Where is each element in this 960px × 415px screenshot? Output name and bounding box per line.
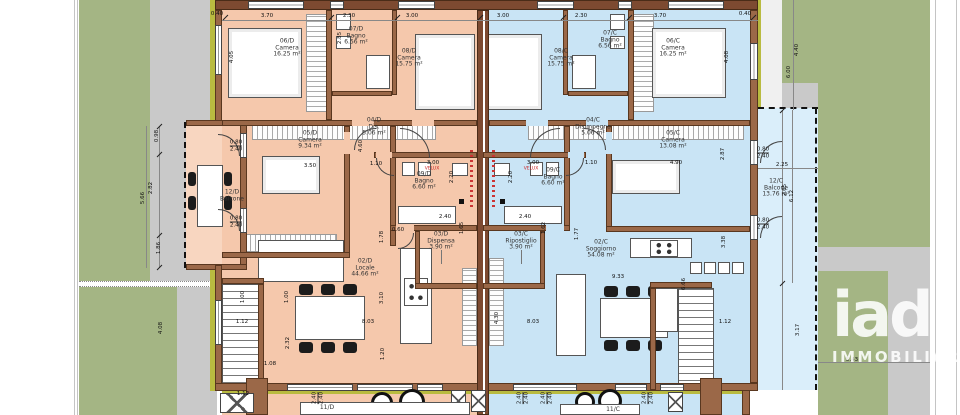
dimension-label: 1.62 bbox=[541, 222, 547, 234]
cabinet bbox=[306, 14, 328, 112]
dimension-label: 6.12 bbox=[789, 190, 795, 202]
cabinet bbox=[489, 258, 504, 346]
dimension-line bbox=[222, 20, 758, 21]
dimension-label: 0.802.40 bbox=[757, 147, 769, 160]
dimension-label: 9.33 bbox=[612, 274, 624, 280]
dimension-label: 2.402.40 bbox=[541, 392, 554, 404]
dimension-label: 2.30 bbox=[575, 13, 587, 19]
dimension-label: 0.802.40 bbox=[230, 140, 242, 153]
chair bbox=[343, 284, 357, 295]
brand-logo-text: iad bbox=[832, 284, 960, 346]
wall bbox=[222, 278, 264, 284]
balcony-edge bbox=[815, 108, 817, 390]
wall bbox=[568, 91, 628, 96]
dimension-label: 3.17 bbox=[795, 324, 801, 336]
dimension-label: 1.77 bbox=[574, 228, 580, 240]
chair bbox=[188, 196, 196, 210]
room-label-06-c: 06/CCamera16.25 m² bbox=[659, 38, 686, 58]
chair bbox=[321, 284, 335, 295]
leader-line bbox=[441, 250, 442, 264]
dimension-label: 3.70 bbox=[654, 13, 666, 19]
dimension-label: 1.78 bbox=[379, 231, 385, 243]
brand-wordmark: IMMOBILIARE bbox=[832, 348, 960, 366]
cabinet bbox=[632, 14, 654, 112]
lawn bbox=[818, 83, 930, 247]
window bbox=[618, 1, 632, 9]
floor-plan-canvas: 06/DCamera16.25 m²07/DBagno6.56 m²08/DCa… bbox=[0, 0, 960, 415]
chair bbox=[626, 340, 640, 351]
red-note bbox=[492, 150, 495, 210]
balcony-edge bbox=[184, 122, 186, 268]
balcony-edge bbox=[758, 107, 818, 109]
window bbox=[750, 43, 758, 80]
dimension-label: 3.10 bbox=[379, 292, 385, 304]
door-opening bbox=[344, 132, 350, 154]
dimension-label: 3.00 bbox=[497, 13, 509, 19]
room-label-02-c: 02/CSoggiorno54.08 m² bbox=[586, 239, 616, 259]
room-label-09-c: 09/CBagno6.60 m² bbox=[541, 167, 565, 187]
room-label-06-d: 06/DCamera16.25 m² bbox=[273, 38, 300, 58]
furniture bbox=[560, 404, 640, 415]
furniture bbox=[258, 240, 344, 282]
dimension-label: 3.50 bbox=[304, 163, 316, 169]
dimension-line bbox=[758, 168, 818, 169]
dimension-label: 1.12 bbox=[236, 319, 248, 325]
dimension-label: 1.00 bbox=[284, 291, 290, 303]
wall bbox=[258, 284, 264, 390]
room-label-08-d: 08/DCamera15.75 m² bbox=[395, 48, 422, 68]
window bbox=[248, 1, 304, 9]
dimension-label: 0.40 bbox=[211, 11, 223, 17]
margin-line bbox=[74, 0, 75, 415]
planter bbox=[668, 392, 683, 412]
dimension-label: 8.03 bbox=[362, 319, 374, 325]
column bbox=[500, 199, 505, 204]
dimension-label: 0.802.40 bbox=[757, 218, 769, 231]
dimension-label: 2.402.40 bbox=[517, 392, 530, 404]
window bbox=[417, 384, 443, 391]
dimension-label: 0.98 bbox=[154, 130, 160, 142]
dimension-label: 1.10 bbox=[370, 161, 382, 167]
chair bbox=[626, 286, 640, 297]
dimension-label: 0.60 bbox=[392, 227, 404, 233]
dimension-label: 2.402.40 bbox=[312, 392, 325, 404]
margin-line bbox=[77, 0, 78, 415]
furniture bbox=[295, 296, 365, 340]
chair bbox=[321, 342, 335, 353]
room-label-07-c: 07/CBagno6.56 m² bbox=[598, 30, 622, 50]
dimension-label: 2.87 bbox=[720, 148, 726, 160]
party-wall bbox=[477, 10, 489, 415]
window bbox=[660, 384, 684, 391]
wall bbox=[415, 231, 420, 289]
lawn bbox=[79, 287, 177, 415]
window bbox=[513, 384, 577, 391]
window bbox=[215, 300, 222, 345]
room-label-08-c: 08/CCamera15.75 m² bbox=[547, 48, 574, 68]
room-label-11-d: 11/D bbox=[320, 405, 334, 412]
furniture bbox=[704, 262, 716, 274]
wall bbox=[700, 378, 722, 415]
dimension-line bbox=[782, 110, 783, 390]
furniture bbox=[610, 14, 625, 30]
door-opening bbox=[412, 120, 434, 126]
window bbox=[398, 1, 435, 9]
dimension-label: 8.03 bbox=[527, 319, 539, 325]
planter bbox=[471, 390, 486, 412]
room-label-07-d: 07/DBagno6.56 m² bbox=[344, 26, 368, 46]
dimension-label: 1.12 bbox=[237, 391, 249, 397]
dimension-label: 2.20 bbox=[449, 171, 455, 183]
window bbox=[615, 384, 647, 391]
pavement bbox=[761, 0, 782, 108]
path bbox=[818, 247, 930, 271]
velux-label: VELUX bbox=[425, 167, 440, 172]
wall bbox=[540, 231, 545, 289]
path bbox=[782, 83, 818, 108]
dimension-label: 1.10 bbox=[585, 160, 597, 166]
dimension-label: 3.00 bbox=[527, 160, 539, 166]
dimension-label: 4.08 bbox=[158, 322, 164, 334]
bed bbox=[262, 156, 320, 194]
brand-logo: iad IMMOBILIARE bbox=[832, 284, 960, 366]
wall bbox=[415, 283, 477, 289]
dimension-label: 2.82 bbox=[148, 182, 154, 194]
window bbox=[537, 1, 574, 9]
chair bbox=[188, 172, 196, 186]
dimension-label: 4.40 bbox=[794, 44, 800, 56]
room-label-05-d: 05/DCamera9.34 m² bbox=[298, 130, 322, 150]
dimension-label: 2.85 bbox=[337, 32, 343, 44]
dimension-label: 4.08 bbox=[724, 51, 730, 63]
furniture bbox=[732, 262, 744, 274]
wall bbox=[628, 10, 634, 120]
dimension-label: 4.60 bbox=[358, 140, 364, 152]
furniture bbox=[366, 55, 390, 89]
door-opening bbox=[526, 120, 548, 126]
dimension-label: 2.65 bbox=[782, 184, 788, 196]
dimension-label: 2.402.40 bbox=[642, 392, 655, 404]
wall bbox=[483, 283, 545, 289]
wall bbox=[222, 252, 350, 258]
wardrobe bbox=[528, 124, 744, 140]
dimension-label: 1.86 bbox=[156, 242, 162, 254]
chair bbox=[604, 286, 618, 297]
door-opening bbox=[546, 225, 564, 231]
room-label-09-d: 09/DBagno6.60 m² bbox=[412, 171, 436, 191]
wall bbox=[606, 226, 750, 232]
chair bbox=[343, 342, 357, 353]
window bbox=[330, 1, 344, 9]
furniture bbox=[654, 288, 678, 332]
dimension-label: 3.00 bbox=[427, 160, 439, 166]
dimension-label: 0.802.40 bbox=[230, 216, 242, 229]
room-label-02-d: 02/DLocale44.66 m² bbox=[351, 258, 378, 278]
dimension-label: 3.70 bbox=[261, 13, 273, 19]
dimension-label: 0.40 bbox=[739, 11, 751, 17]
dimension-label: 1.00 bbox=[240, 291, 246, 303]
lawn bbox=[782, 0, 930, 83]
dimension-label: 6.66 bbox=[681, 278, 687, 290]
furniture bbox=[556, 274, 586, 356]
room-label-03-d: 03/DDispensa3.90 m² bbox=[427, 231, 455, 251]
chair bbox=[299, 284, 313, 295]
chair bbox=[604, 340, 618, 351]
furniture bbox=[690, 262, 702, 274]
room-label-03-c: 03/CRipostiglio3.90 m² bbox=[505, 231, 536, 251]
room-label-04-d: 04/DDis.5.06 m² bbox=[362, 117, 386, 137]
bed bbox=[482, 34, 542, 110]
dimension-label: 2.25 bbox=[776, 162, 788, 168]
wall bbox=[650, 288, 656, 390]
furniture bbox=[718, 262, 730, 274]
dimension-label: 1.65 bbox=[459, 222, 465, 234]
dimension-label: 1.20 bbox=[380, 348, 386, 360]
cabinet bbox=[462, 268, 477, 346]
window bbox=[287, 384, 353, 391]
column bbox=[459, 199, 464, 204]
dimension-label: 2.40 bbox=[519, 214, 531, 220]
bed bbox=[415, 34, 475, 110]
dimension-label: 4.30 bbox=[494, 312, 500, 324]
dimension-label: 1.08 bbox=[264, 361, 276, 367]
stove-icon bbox=[650, 240, 678, 257]
dimension-label: 1.12 bbox=[719, 319, 731, 325]
room-label-12-d: 12/DBalcone bbox=[220, 190, 244, 203]
dimension-label: 2.32 bbox=[285, 337, 291, 349]
dimension-label: 3.00 bbox=[406, 13, 418, 19]
dimension-label: 4.90 bbox=[670, 160, 682, 166]
red-note bbox=[470, 150, 473, 210]
dimension-label: 2.20 bbox=[508, 171, 514, 183]
dimension-label: 4.05 bbox=[229, 51, 235, 63]
wall bbox=[332, 91, 392, 96]
room-label-11-c: 11/C bbox=[606, 407, 620, 414]
window bbox=[668, 1, 724, 9]
dimension-label: 3.38 bbox=[721, 236, 727, 248]
leader-line bbox=[521, 250, 522, 264]
wall bbox=[326, 10, 332, 120]
window bbox=[215, 25, 222, 75]
lawn bbox=[79, 0, 150, 281]
dimension-label: 2.30 bbox=[343, 13, 355, 19]
chair bbox=[299, 342, 313, 353]
dimension-line bbox=[146, 126, 147, 268]
furniture bbox=[504, 206, 562, 224]
velux-label: VELUX bbox=[524, 167, 539, 172]
chair bbox=[224, 172, 232, 186]
wall bbox=[742, 390, 750, 415]
dimension-label: 5.66 bbox=[140, 192, 146, 204]
dimension-label: 6.00 bbox=[786, 66, 792, 78]
staircase bbox=[678, 288, 714, 388]
room-label-05-c: 05/CCamera13.08 m² bbox=[659, 130, 686, 150]
room-label-04-c: 04/CDisimpegno5.06 m² bbox=[575, 117, 611, 137]
furniture bbox=[572, 55, 596, 89]
dimension-label: 2.40 bbox=[439, 214, 451, 220]
